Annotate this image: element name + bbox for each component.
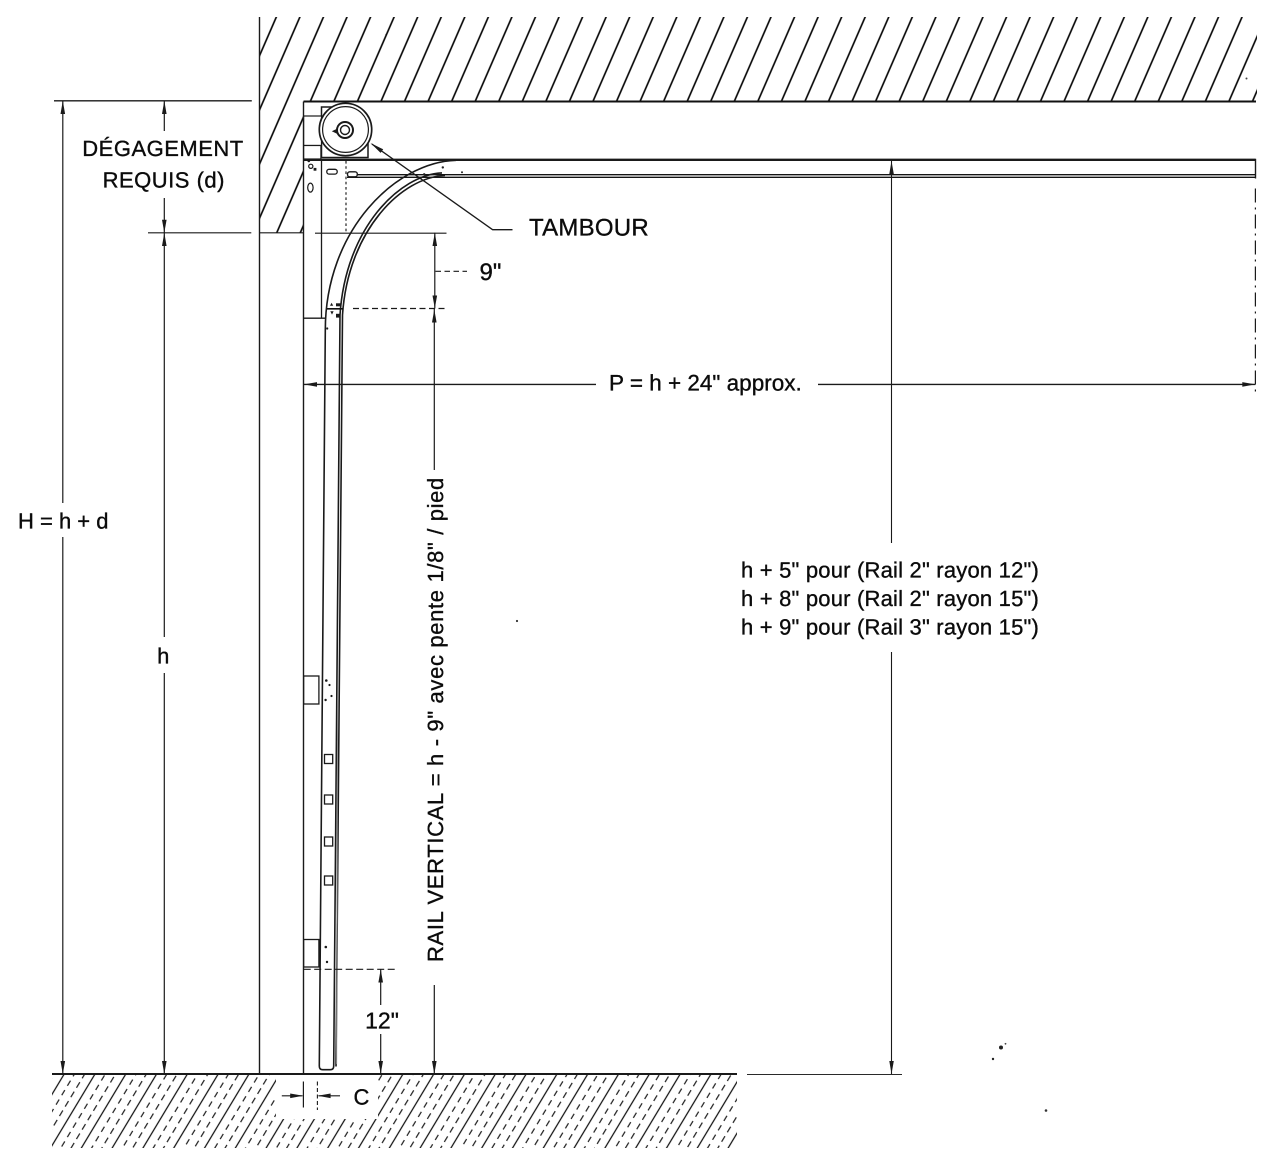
svg-text:h + 8" pour (Rail 2" rayon 15": h + 8" pour (Rail 2" rayon 15") <box>741 586 1039 611</box>
svg-text:TAMBOUR: TAMBOUR <box>529 214 649 241</box>
svg-text:C: C <box>354 1085 370 1110</box>
svg-text:12": 12" <box>365 1007 399 1033</box>
svg-text:H = h + d: H = h + d <box>18 509 109 534</box>
svg-text:h + 9" pour (Rail 3" rayon 15": h + 9" pour (Rail 3" rayon 15") <box>741 615 1039 640</box>
svg-text:h: h <box>157 644 169 669</box>
svg-text:P = h + 24" approx.: P = h + 24" approx. <box>609 371 802 396</box>
svg-text:9": 9" <box>480 259 502 286</box>
svg-text:DÉGAGEMENT: DÉGAGEMENT <box>82 136 243 161</box>
svg-text:REQUIS (d): REQUIS (d) <box>103 168 225 193</box>
svg-text:h + 5" pour (Rail 2" rayon 12": h + 5" pour (Rail 2" rayon 12") <box>741 558 1039 583</box>
svg-text:RAIL VERTICAL = h - 9" avec pe: RAIL VERTICAL = h - 9" avec pente 1/8" /… <box>423 477 448 962</box>
